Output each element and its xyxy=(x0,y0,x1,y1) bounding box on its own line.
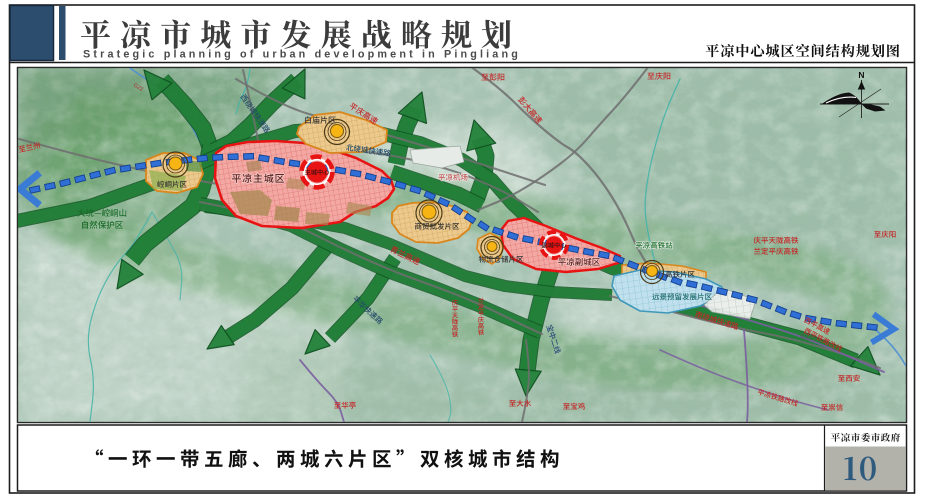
svg-text:N: N xyxy=(858,70,864,80)
svg-text:Strategic planning of urban de: Strategic planning of urban development … xyxy=(83,49,521,61)
